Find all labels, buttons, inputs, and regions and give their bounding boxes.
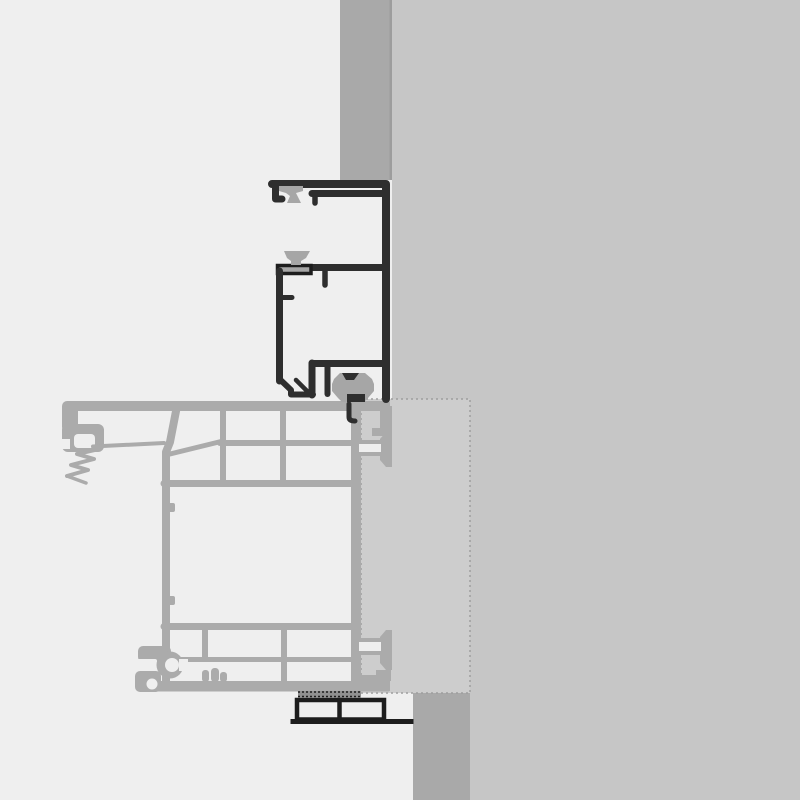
chamber-nub-lower <box>168 596 175 605</box>
gasket-bottom-tab <box>347 394 365 402</box>
wall-section-lower <box>413 693 470 800</box>
sash-bottom-plate <box>138 681 390 692</box>
chamber-nub-upper <box>168 503 175 512</box>
cross-section-drawing <box>0 0 800 800</box>
sash-top-flange <box>67 401 390 411</box>
foot-hook-hole <box>165 658 179 672</box>
t-connector-1-stem <box>357 442 383 454</box>
wall-section-upper-edge <box>390 0 393 180</box>
sash-beak-notch <box>57 439 70 449</box>
foot-hook-gap <box>179 659 188 671</box>
plate-bump-3 <box>220 672 227 682</box>
plate-bump-1 <box>202 670 209 682</box>
wall-section-upper <box>340 0 392 180</box>
bottom-right-hook <box>376 670 391 681</box>
foot-toe-notch <box>147 679 158 690</box>
plate-bump-2 <box>211 668 219 682</box>
background-layers <box>0 0 800 800</box>
technical-drawing-canvas <box>0 0 800 800</box>
t-connector-2-stem <box>357 640 383 653</box>
